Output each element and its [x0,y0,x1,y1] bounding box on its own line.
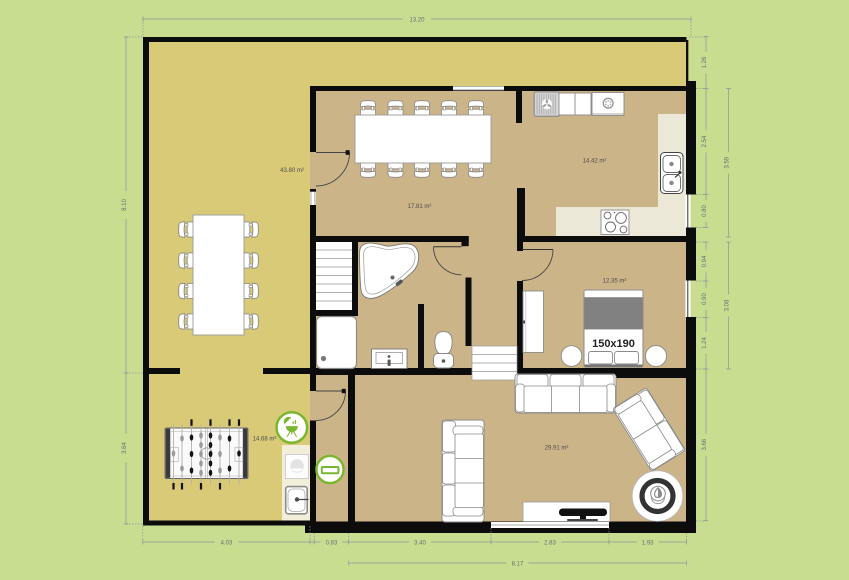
svg-text:43.80 m²: 43.80 m² [280,168,304,174]
svg-text:0.94: 0.94 [702,255,708,267]
svg-text:29.91 m²: 29.91 m² [545,446,569,452]
svg-text:2.54: 2.54 [702,135,708,147]
svg-text:2.83: 2.83 [544,541,556,547]
svg-text:3.59: 3.59 [725,156,731,168]
svg-text:14.42 m²: 14.42 m² [583,159,607,165]
svg-text:3.66: 3.66 [702,438,708,450]
svg-text:8.10: 8.10 [122,199,128,211]
svg-text:150x190: 150x190 [592,338,635,350]
svg-text:13.20: 13.20 [409,18,425,24]
svg-text:1.26: 1.26 [702,56,708,68]
svg-text:3.64: 3.64 [122,442,128,454]
svg-text:1.24: 1.24 [702,337,708,349]
svg-text:3.40: 3.40 [414,541,426,547]
svg-text:0.83: 0.83 [326,541,338,547]
svg-text:0.80: 0.80 [702,205,708,217]
svg-text:3.08: 3.08 [725,299,731,311]
svg-text:14.68 m²: 14.68 m² [253,437,277,443]
svg-text:1.93: 1.93 [642,541,654,547]
svg-text:17.81 m²: 17.81 m² [408,204,432,210]
svg-text:0.90: 0.90 [702,293,708,305]
svg-text:8.17: 8.17 [512,562,524,568]
svg-text:4.03: 4.03 [221,541,233,547]
svg-text:12.35 m²: 12.35 m² [603,279,627,285]
